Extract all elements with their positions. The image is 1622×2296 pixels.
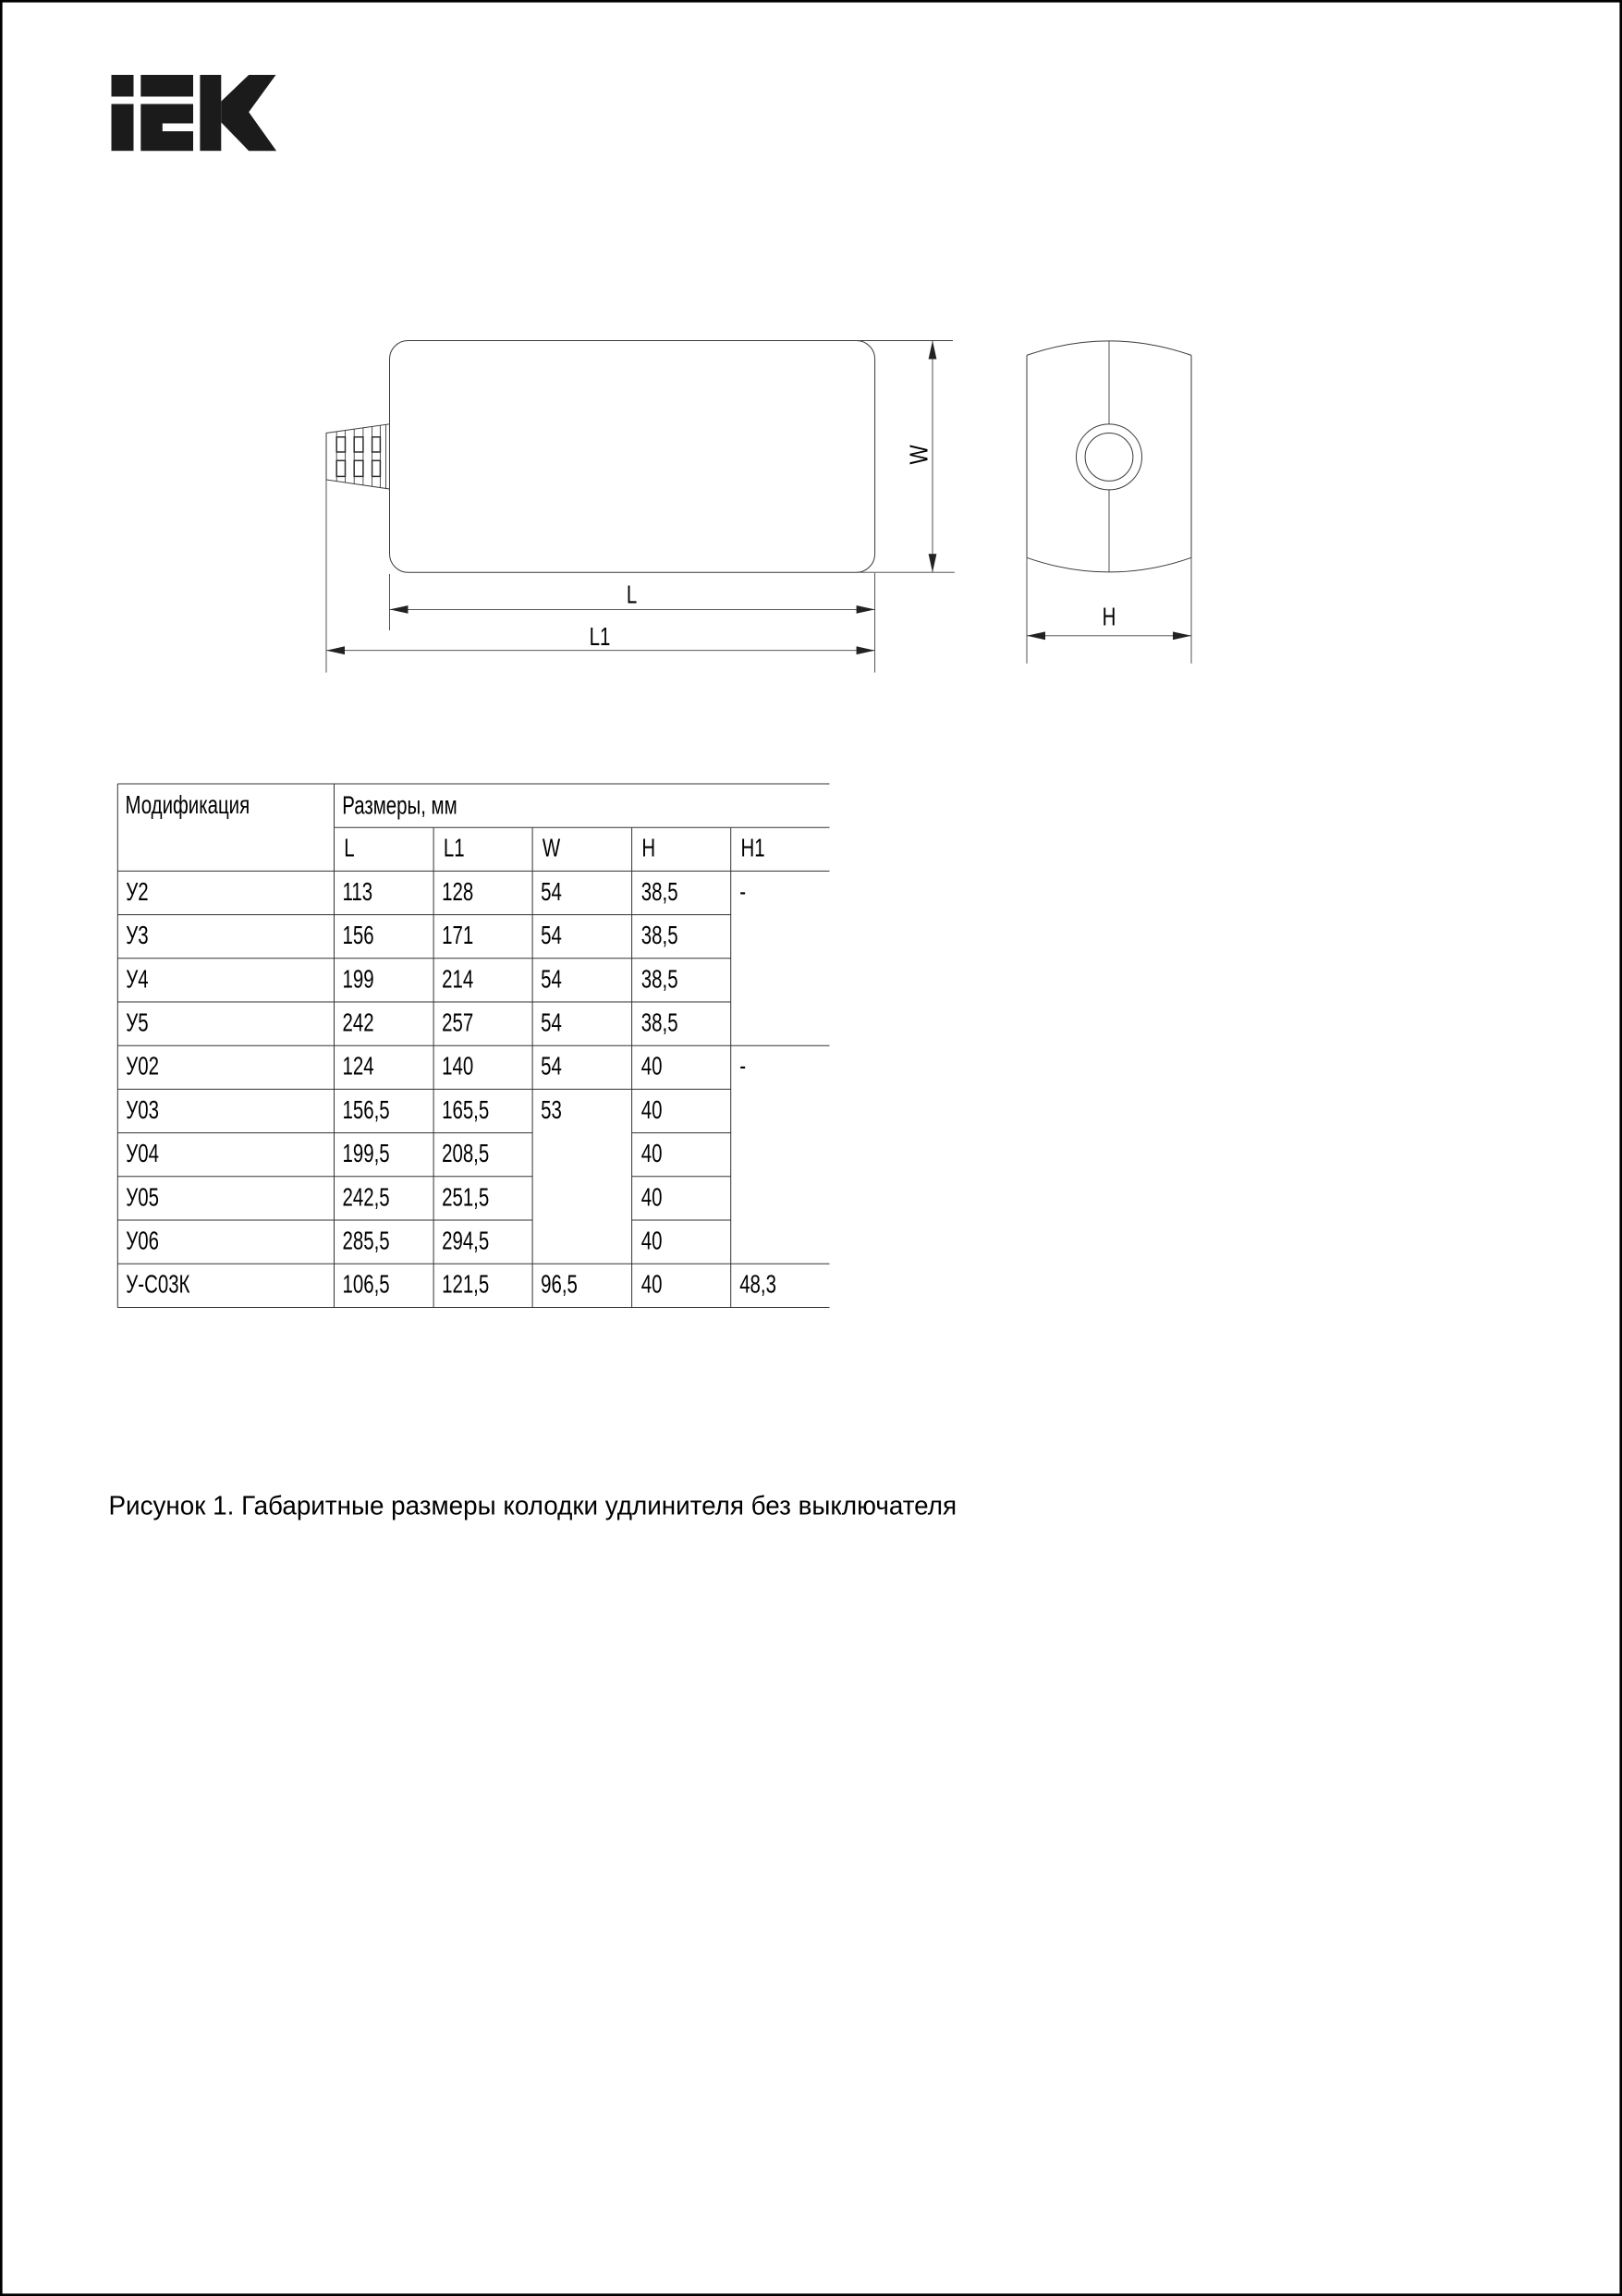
svg-text:W: W: [543, 834, 561, 862]
svg-text:53: 53: [541, 1096, 562, 1125]
svg-text:L1: L1: [590, 623, 611, 652]
svg-text:171: 171: [442, 922, 473, 950]
svg-text:W: W: [905, 445, 933, 464]
svg-text:У3: У3: [126, 922, 148, 950]
svg-text:242,5: 242,5: [343, 1183, 390, 1212]
svg-text:242: 242: [343, 1009, 374, 1038]
svg-text:У05: У05: [126, 1183, 159, 1212]
svg-text:H: H: [1103, 604, 1116, 632]
svg-text:Размеры, мм: Размеры, мм: [342, 792, 457, 821]
svg-text:48,3: 48,3: [739, 1271, 776, 1300]
svg-text:257: 257: [442, 1009, 473, 1038]
svg-text:-: -: [739, 878, 746, 907]
svg-text:54: 54: [541, 1053, 562, 1081]
svg-text:199,5: 199,5: [343, 1140, 390, 1168]
svg-text:40: 40: [641, 1053, 663, 1081]
svg-text:40: 40: [641, 1227, 663, 1256]
svg-text:40: 40: [641, 1183, 663, 1212]
svg-text:-: -: [739, 1053, 746, 1081]
svg-text:124: 124: [343, 1053, 374, 1081]
svg-text:199: 199: [343, 965, 374, 994]
svg-text:54: 54: [541, 965, 562, 994]
svg-text:285,5: 285,5: [343, 1227, 390, 1256]
svg-text:106,5: 106,5: [343, 1271, 390, 1300]
svg-text:156: 156: [343, 922, 374, 950]
svg-text:У4: У4: [126, 965, 148, 994]
svg-text:54: 54: [541, 878, 562, 907]
svg-text:121,5: 121,5: [442, 1271, 489, 1300]
svg-text:L1: L1: [444, 834, 465, 862]
svg-text:H1: H1: [741, 834, 765, 862]
svg-text:156,5: 156,5: [343, 1096, 390, 1125]
svg-text:У-С03К: У-С03К: [126, 1271, 190, 1300]
svg-text:L: L: [344, 834, 354, 862]
svg-text:38,5: 38,5: [641, 1009, 678, 1038]
svg-text:Модификация: Модификация: [126, 791, 250, 820]
svg-text:165,5: 165,5: [442, 1096, 489, 1125]
svg-text:40: 40: [641, 1140, 663, 1168]
svg-text:208,5: 208,5: [442, 1140, 489, 1168]
svg-text:У02: У02: [126, 1053, 159, 1081]
svg-text:40: 40: [641, 1096, 663, 1125]
svg-text:214: 214: [442, 965, 473, 994]
svg-text:140: 140: [442, 1053, 473, 1081]
svg-text:294,5: 294,5: [442, 1227, 489, 1256]
svg-text:L: L: [627, 581, 637, 610]
svg-text:У5: У5: [126, 1009, 148, 1038]
svg-text:40: 40: [641, 1271, 663, 1300]
svg-text:38,5: 38,5: [641, 878, 678, 907]
svg-text:У06: У06: [126, 1227, 159, 1256]
svg-text:96,5: 96,5: [541, 1271, 578, 1300]
svg-text:251,5: 251,5: [442, 1183, 489, 1212]
svg-text:113: 113: [343, 878, 373, 907]
svg-text:Рисунок 1. Габаритные размеры: Рисунок 1. Габаритные размеры колодки уд…: [109, 1491, 957, 1521]
svg-text:54: 54: [541, 922, 562, 950]
svg-text:128: 128: [442, 878, 473, 907]
svg-text:У03: У03: [126, 1096, 159, 1125]
svg-text:H: H: [641, 834, 655, 862]
svg-text:38,5: 38,5: [641, 922, 678, 950]
svg-text:У04: У04: [126, 1140, 159, 1168]
svg-text:54: 54: [541, 1009, 562, 1038]
svg-text:У2: У2: [126, 878, 148, 907]
svg-text:38,5: 38,5: [641, 965, 678, 994]
